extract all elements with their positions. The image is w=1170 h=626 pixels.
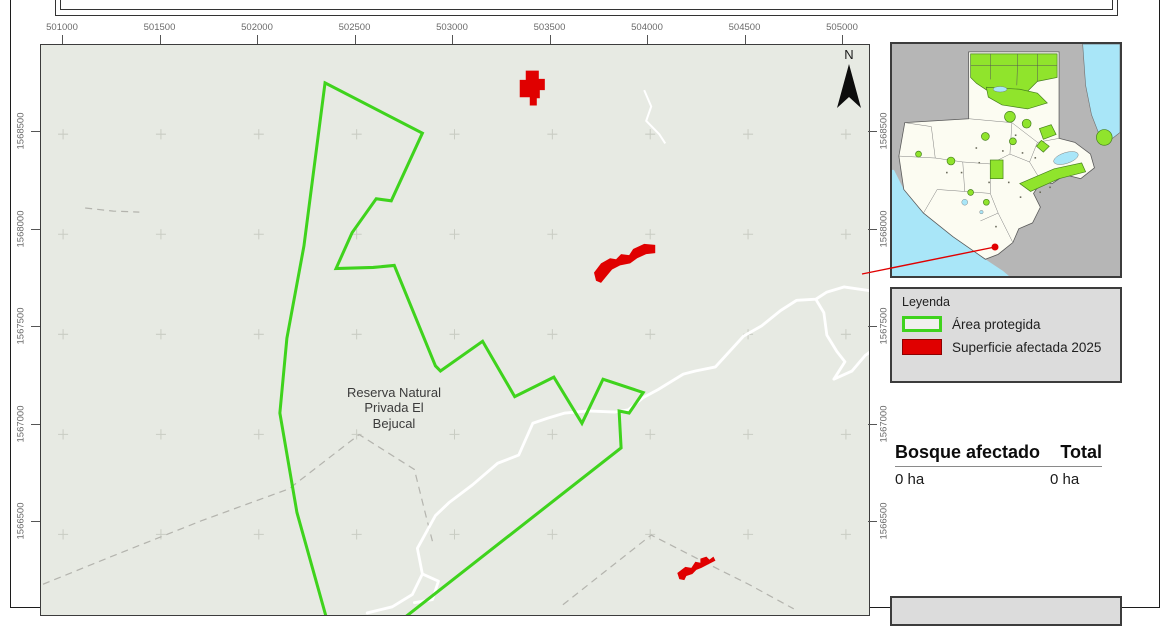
y-axis-label-right: 1567500	[879, 308, 890, 345]
y-axis-tick-right	[868, 326, 877, 327]
y-axis-label-right: 1567000	[879, 405, 890, 442]
legend-label-protected-area: Área protegida	[952, 317, 1041, 332]
affected-forest-table-values: 0 ha 0 ha	[895, 471, 1102, 488]
col-total: Total	[1060, 442, 1102, 463]
legend-panel: Leyenda Área protegida Superficie afecta…	[890, 287, 1122, 383]
legend-title: Leyenda	[902, 295, 1110, 309]
y-axis-tick-right	[868, 521, 877, 522]
y-axis-label-right: 1568000	[879, 210, 890, 247]
legend-swatch-protected-area	[902, 316, 942, 332]
y-axis-tick-right	[868, 229, 877, 230]
affected-forest-table: Bosque afectado Total 0 ha 0 ha	[895, 442, 1102, 488]
y-axis-label-right: 1568500	[879, 113, 890, 150]
y-axis-label-right: 1566500	[879, 503, 890, 540]
legend-swatch-affected-surface	[902, 339, 942, 355]
affected-forest-table-header: Bosque afectado Total	[895, 442, 1102, 467]
col-bosque-afectado: Bosque afectado	[895, 442, 1040, 463]
y-axis-tick-right	[868, 424, 877, 425]
value-total: 0 ha	[1050, 471, 1102, 488]
bottom-panel-cutoff	[890, 596, 1122, 626]
inset-map-canvas	[892, 44, 1120, 276]
y-axis-tick-right	[868, 131, 877, 132]
legend-item-affected-surface: Superficie afectada 2025	[902, 339, 1110, 355]
legend-label-affected-surface: Superficie afectada 2025	[952, 340, 1101, 355]
legend-item-protected-area: Área protegida	[902, 316, 1110, 332]
value-bosque-afectado: 0 ha	[895, 471, 1050, 488]
inset-map-guatemala	[890, 42, 1122, 278]
